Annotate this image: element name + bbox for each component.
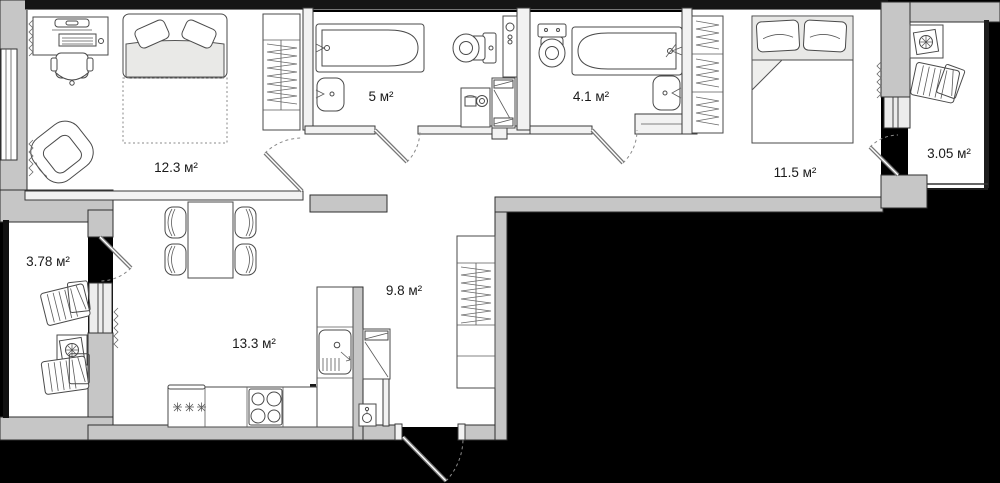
double-bed [752, 16, 853, 143]
kitchen-balcony-window [89, 283, 112, 333]
bathtub [316, 24, 424, 72]
dining-chair [165, 207, 186, 238]
bedroom-furniture [692, 16, 881, 143]
hall-right-wall [495, 200, 507, 440]
dining-chair [165, 244, 186, 275]
bathtub [572, 27, 682, 75]
desk-with-computer [33, 17, 108, 55]
bath-cabinet [492, 78, 515, 128]
wc-bathroom-area-label: 4.1 м² [573, 89, 610, 104]
dining-chair [235, 207, 256, 238]
floor-plan: 12.3 м² 5 м² 4.1 м² 11.5 м² 3.05 м² 3.78… [0, 0, 1000, 483]
floor-plan-canvas: 12.3 м² 5 м² 4.1 м² 11.5 м² 3.05 м² 3.78… [0, 0, 1000, 483]
water-heater [359, 404, 376, 426]
living-wardrobe [263, 14, 300, 130]
bathrooms-divider-wall [517, 8, 530, 130]
hallway-area-label: 9.8 м² [386, 283, 423, 298]
bedroom-area-label: 11.5 м² [774, 165, 817, 180]
dining-table [188, 202, 233, 278]
exterior-wall-top [25, 0, 888, 9]
toilet [453, 33, 496, 63]
balcony-left-glazing [3, 220, 9, 418]
cabinet-side-panel [383, 378, 389, 426]
living-window [1, 49, 17, 160]
living-bottom-wall [25, 191, 303, 200]
wc-bottom-wall-left [530, 126, 592, 134]
bedroom-balcony-door-sill [884, 97, 910, 128]
living-bathroom-wall [303, 8, 313, 130]
living-room-area-label: 12.3 м² [154, 160, 198, 175]
balcony-right-area-label: 3.05 м² [927, 146, 971, 161]
balcony-right-glazing [984, 20, 989, 188]
stove [249, 389, 282, 425]
bedroom-closet [692, 16, 723, 133]
bottom-band-right [495, 197, 883, 212]
hall-wardrobe [457, 236, 495, 388]
plant-icon [913, 29, 938, 54]
kitchen-balcony-wall-upper [88, 210, 113, 237]
balcony-left-area-label: 3.78 м² [26, 254, 70, 269]
wc-bedroom-wall [682, 8, 692, 134]
tall-cabinet [363, 329, 390, 379]
balcony-right-bottom-wall [881, 175, 927, 208]
toilet [538, 24, 566, 67]
utility-shaft [503, 16, 517, 77]
bedroom-balcony-wall [881, 2, 910, 97]
bathroom-bottom-wall-left [305, 126, 375, 134]
washing-machine [461, 88, 490, 127]
bathroom-area-label: 5 м² [368, 89, 394, 104]
washbasin [316, 78, 344, 111]
kitchen-sink-unit [317, 287, 353, 427]
bottom-band-mid [310, 195, 387, 212]
kitchen-area-label: 13.3 м² [232, 336, 276, 351]
dining-chair [235, 244, 256, 275]
washbasin [653, 76, 681, 110]
hallway-furniture [457, 236, 495, 388]
